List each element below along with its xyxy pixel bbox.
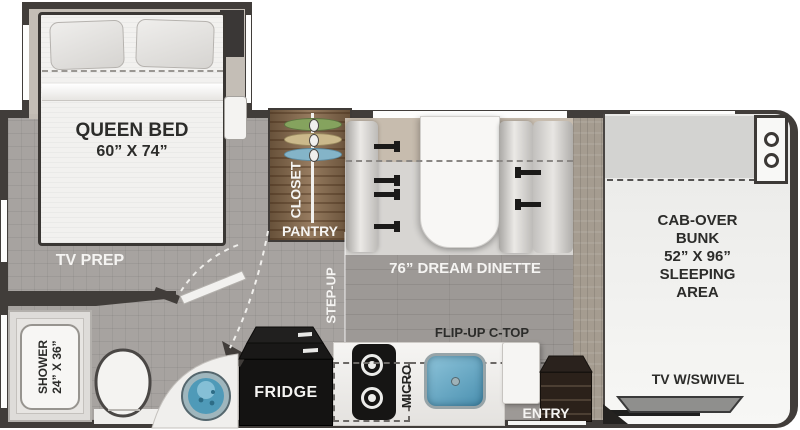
sink-drain-icon: [451, 377, 460, 386]
seatbelt-icon: [521, 170, 541, 175]
bed-blanket-fold: [42, 84, 223, 101]
nightstand: [224, 96, 247, 140]
pantry-label: PANTRY: [268, 223, 352, 239]
hanger-icon: [284, 118, 342, 131]
dinette-dashed-line: [346, 160, 573, 162]
seatbelt-icon: [374, 178, 394, 183]
window: [246, 15, 251, 103]
cab-over-bunk-label: CAB-OVER BUNK 52” X 96” SLEEPING AREA: [615, 212, 780, 302]
dinette-bench-right: [499, 121, 533, 253]
hanger-hook-icon: [309, 149, 319, 162]
queen-bed-label: QUEEN BED 60” X 74”: [42, 120, 222, 162]
bunk-head-section: [605, 116, 755, 178]
hanger-hook-icon: [309, 134, 319, 147]
shower: SHOWER 24” X 36”: [20, 324, 80, 410]
cab-console: [754, 115, 788, 184]
pillow: [135, 19, 215, 70]
rv-floor-plan: SHOWER 24” X 36” FRIDGE: [0, 0, 800, 430]
fridge-label: FRIDGE: [254, 384, 317, 402]
entry-step-edge: [508, 421, 586, 425]
dinette-side-panel: [533, 121, 573, 253]
tv-prep-label: TV PREP: [20, 252, 160, 270]
dinette-label: 76” DREAM DINETTE: [370, 260, 560, 277]
kitchen-sink: [424, 353, 486, 409]
seatbelt-icon: [374, 192, 394, 197]
bunk-dashed-line: [607, 179, 755, 181]
entry-label: ENTRY: [514, 405, 578, 421]
hanger-icon: [284, 133, 342, 146]
micro-label: MICRO: [393, 350, 421, 422]
hanger-hook-icon: [309, 119, 319, 132]
bed-dashed-line: [42, 70, 223, 72]
dinette-table: [420, 116, 500, 248]
window: [23, 25, 29, 100]
flip-up-ctop-label: FLIP-UP C-TOP: [413, 325, 551, 340]
shower-label: SHOWER 24” X 36”: [36, 340, 64, 394]
seatbelt-icon: [521, 202, 541, 207]
seatbelt-icon: [374, 224, 394, 229]
window: [1, 315, 7, 408]
window: [1, 200, 7, 262]
cupholder-icon: [764, 132, 779, 147]
fridge: FRIDGE: [239, 359, 333, 426]
tv-swivel-label: TV W/SWIVEL: [628, 371, 768, 387]
cupholder-icon: [764, 153, 779, 168]
seatbelt-icon: [374, 144, 394, 149]
closet-label: CLOSET: [281, 150, 309, 230]
pillow: [49, 20, 125, 71]
step-up-label: STEP-UP: [317, 256, 345, 334]
flip-up-countertop: [502, 342, 540, 404]
